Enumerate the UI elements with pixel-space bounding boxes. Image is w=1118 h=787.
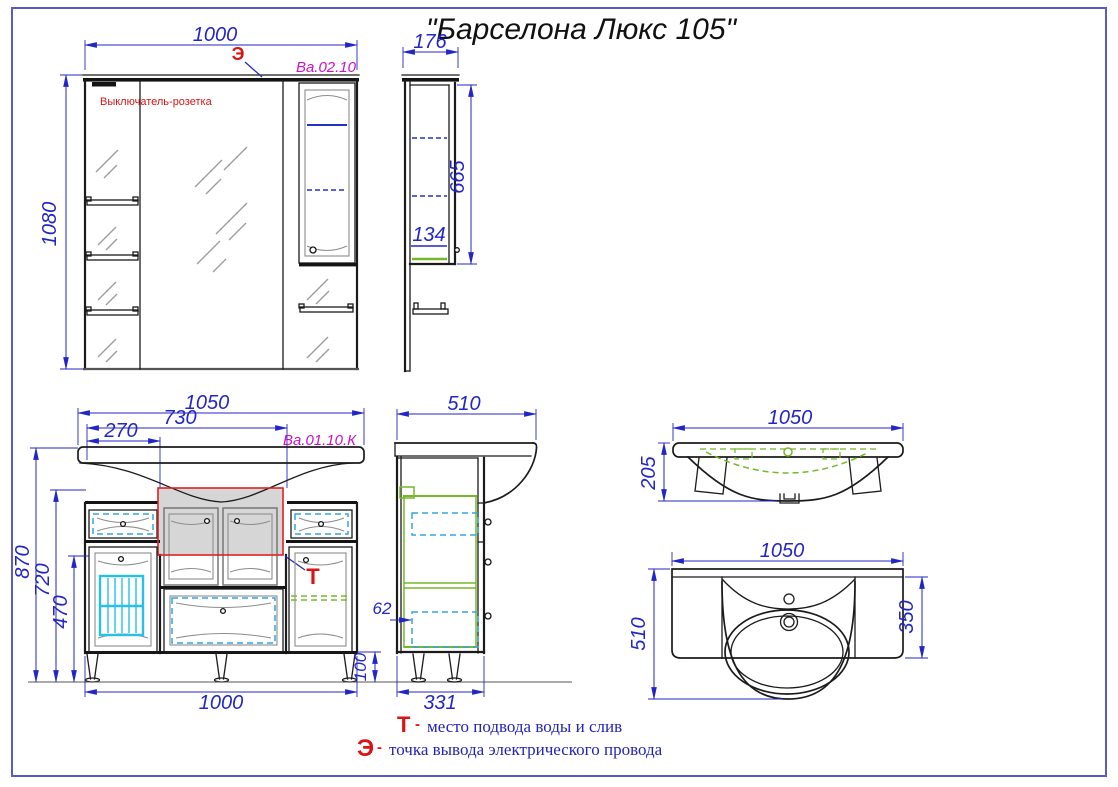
dim-door-height: 470 [50,595,72,628]
dim-mirror-box-height: 665 [447,159,469,193]
legend-water-symbol: Т [397,712,411,737]
page-background [0,0,1118,787]
dim-body-height: 720 [32,563,54,596]
door-knob [310,247,316,253]
electric-callout-symbol: Э [232,44,245,64]
legend-electric-symbol: Э [357,735,374,762]
dim-mirror-width: 1000 [193,24,238,46]
switch-socket-mark [92,82,116,87]
dim-vanity-mid-width: 730 [163,407,196,429]
side-door-knob [455,248,460,253]
dim-basin-width: 1050 [768,407,813,429]
dim-leg-height: 100 [351,652,370,681]
dim-mirror-depth: 176 [413,31,447,53]
legend-water-text: место подвода воды и слив [427,717,622,736]
dim-basin-depth: 350 [896,600,918,633]
switch-socket-label: Выключатель-розетка [100,96,213,108]
dim-basin-height: 205 [638,455,660,490]
dim-plan-width: 1050 [760,540,805,562]
mirror-part-code: Ва.02.10 [296,59,357,76]
dim-mirror-height: 1080 [39,202,61,247]
legend-electric-text: точка вывода электрического провода [389,740,663,759]
drawing-title: "Барселона Люкс 105" [426,13,738,46]
drawing-page: "Барселона Люкс 105" 1000 1080 Выключате… [0,0,1118,787]
dim-drawer-offset: 62 [373,599,392,618]
dim-mirror-shelf: 134 [412,224,445,246]
dim-vanity-small-width: 270 [103,420,137,442]
technical-drawing: "Барселона Люкс 105" 1000 1080 Выключате… [0,0,1118,787]
legend-water-separator: - [415,716,420,733]
dim-plan-depth: 510 [628,617,650,650]
water-callout-symbol: Т [306,564,320,589]
dim-vanity-depth: 510 [447,393,480,415]
dim-total-height: 870 [12,545,34,578]
dim-vanity-bottom-width: 1000 [199,692,244,714]
legend-electric-separator: - [377,739,382,756]
dim-vanity-bottom-depth: 331 [423,692,456,714]
service-zone-shading [158,488,283,555]
